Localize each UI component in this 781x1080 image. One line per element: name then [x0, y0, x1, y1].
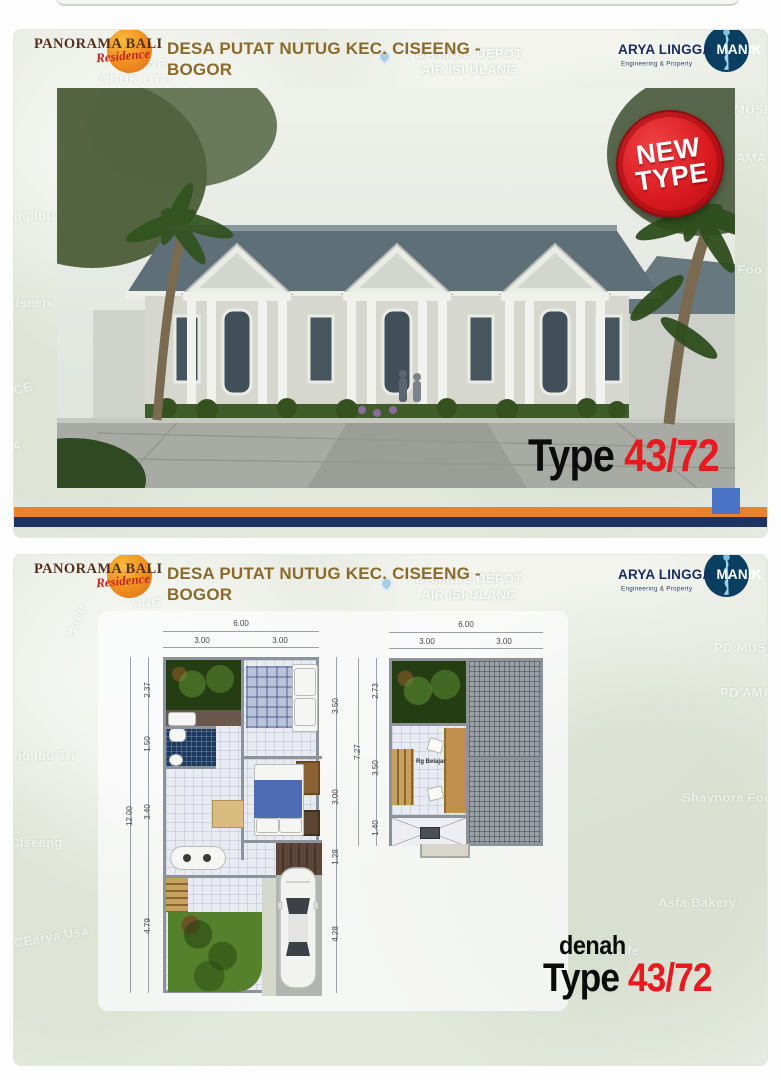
- blue-square-accent: [712, 488, 740, 514]
- garden-void: [392, 661, 466, 723]
- roof-deck: [469, 661, 540, 843]
- flyer-page: DAMISIU DEPOT AIR ISI ULANG Lans Maris B…: [0, 0, 781, 1080]
- orange-stripe: [14, 507, 767, 517]
- denah-type: Type 43/72: [543, 959, 712, 997]
- dim-label: 2.73: [371, 676, 381, 706]
- chair: [427, 785, 445, 801]
- dim-label: 3.00: [407, 637, 447, 646]
- dim-label: 6.00: [446, 620, 486, 629]
- map-label: Ciseen: [14, 295, 50, 310]
- top-card-edge: [55, 0, 740, 6]
- dim-label: 1.40: [371, 813, 381, 843]
- map-label: MUSL: [734, 102, 767, 117]
- brand-right-name: ARYA LINGGAMANIK: [618, 42, 762, 57]
- map-label: AMA: [736, 150, 767, 165]
- dim-label: 3.00: [484, 637, 524, 646]
- denah-label: denah: [559, 935, 626, 955]
- badge-line2: TYPE: [634, 159, 709, 195]
- denah-caption: denah Type 43/72: [543, 935, 735, 997]
- panel-exterior: DAMISIU DEPOT AIR ISI ULANG Lans Maris B…: [14, 30, 767, 537]
- map-label: A: [14, 438, 22, 453]
- navy-stripe: [14, 517, 767, 527]
- stairs-upper: [392, 749, 414, 805]
- brand-right-tagline: Engineering & Property: [621, 60, 692, 67]
- arya-lingga-manik-logo: ARYA LINGGAMANIK Engineering & Property: [14, 30, 767, 90]
- entry-notch: [420, 844, 470, 858]
- upper-plan-body: Rg Belajar: [389, 658, 543, 846]
- dim-label: 7.27: [353, 737, 363, 767]
- type-caption: Type 43/72: [528, 430, 719, 482]
- map-label: NCE: [14, 379, 34, 400]
- panel-floorplan: DAMISIU DEPOT AIR ISI ULANG UNG PD MUSL …: [14, 555, 767, 1065]
- void-tag: [420, 827, 440, 839]
- map-label: dang Ibu: [14, 208, 55, 223]
- dim-label: 3.50: [371, 753, 381, 783]
- desk: [444, 728, 466, 813]
- room-label: Rg Belajar: [416, 759, 446, 765]
- chair: [426, 737, 444, 754]
